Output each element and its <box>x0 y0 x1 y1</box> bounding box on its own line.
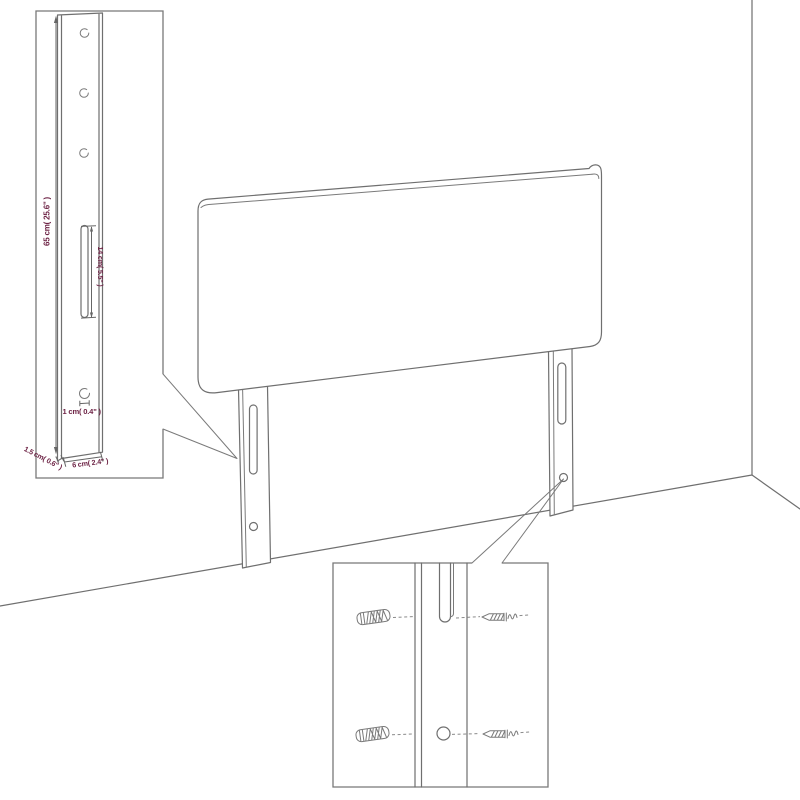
dimension-depth: 1.5 cm( 0.6" ) <box>23 444 65 472</box>
screw-icon <box>483 730 518 738</box>
plug-leader-dash-2 <box>392 734 412 735</box>
floor-line-right <box>752 475 800 509</box>
mounting-detail-inset <box>333 479 564 787</box>
headboard-assembly-diagram: 65 cm( 25.6" ) 14 cm( 5.5" ) 1 cm( 0.4" … <box>0 0 800 800</box>
wall-plug-icon <box>355 726 389 742</box>
detail-slot <box>81 226 88 318</box>
mounting-inset-hole <box>437 727 450 740</box>
dimension-hole-diameter: 1 cm( 0.4" ) <box>63 400 102 416</box>
diagram-canvas: 65 cm( 25.6" ) 14 cm( 5.5" ) 1 cm( 0.4" … <box>0 0 800 800</box>
left-mounting-leg <box>239 386 271 568</box>
right-mounting-leg <box>549 348 574 517</box>
screw-tail-dash-2 <box>521 732 531 733</box>
screw-leader-dash-1 <box>456 617 480 618</box>
dimension-height-label: 65 cm( 25.6" ) <box>43 196 52 246</box>
screw-tail-dash-1 <box>520 615 530 616</box>
leg-detail-drawing <box>58 13 103 461</box>
dimension-hole-label: 1 cm( 0.4" ) <box>63 407 102 416</box>
detail-top-hole-1 <box>80 29 89 38</box>
right-leg-outline <box>549 348 574 517</box>
detail-top-hole-3 <box>80 149 89 158</box>
detail-top-hole-2 <box>80 89 89 98</box>
screw-icon <box>482 613 517 621</box>
detail-small-hole <box>80 389 90 399</box>
headboard-outline <box>198 165 602 393</box>
mounting-inset-leg <box>415 563 467 787</box>
plug-leader-dash-1 <box>393 617 414 618</box>
screw-head-squiggle <box>509 731 518 736</box>
dimension-depth-label: 1.5 cm( 0.6" ) <box>23 444 65 472</box>
dimension-width-label: 6 cm( 2.4" ) <box>72 456 110 469</box>
dimension-slot-label: 14 cm( 5.5" ) <box>96 247 105 288</box>
screw-head-squiggle <box>508 614 517 619</box>
screw-leader-dash-2 <box>452 734 479 735</box>
dimension-height: 65 cm( 25.6" ) <box>43 16 59 454</box>
wall-plug-icon <box>356 609 390 625</box>
headboard-panel <box>198 165 602 393</box>
floor-line-left <box>0 475 752 606</box>
dimension-slot-length: 14 cm( 5.5" ) <box>81 226 105 318</box>
mounting-inset-border <box>333 563 548 787</box>
mounting-inset-slot <box>440 563 451 622</box>
